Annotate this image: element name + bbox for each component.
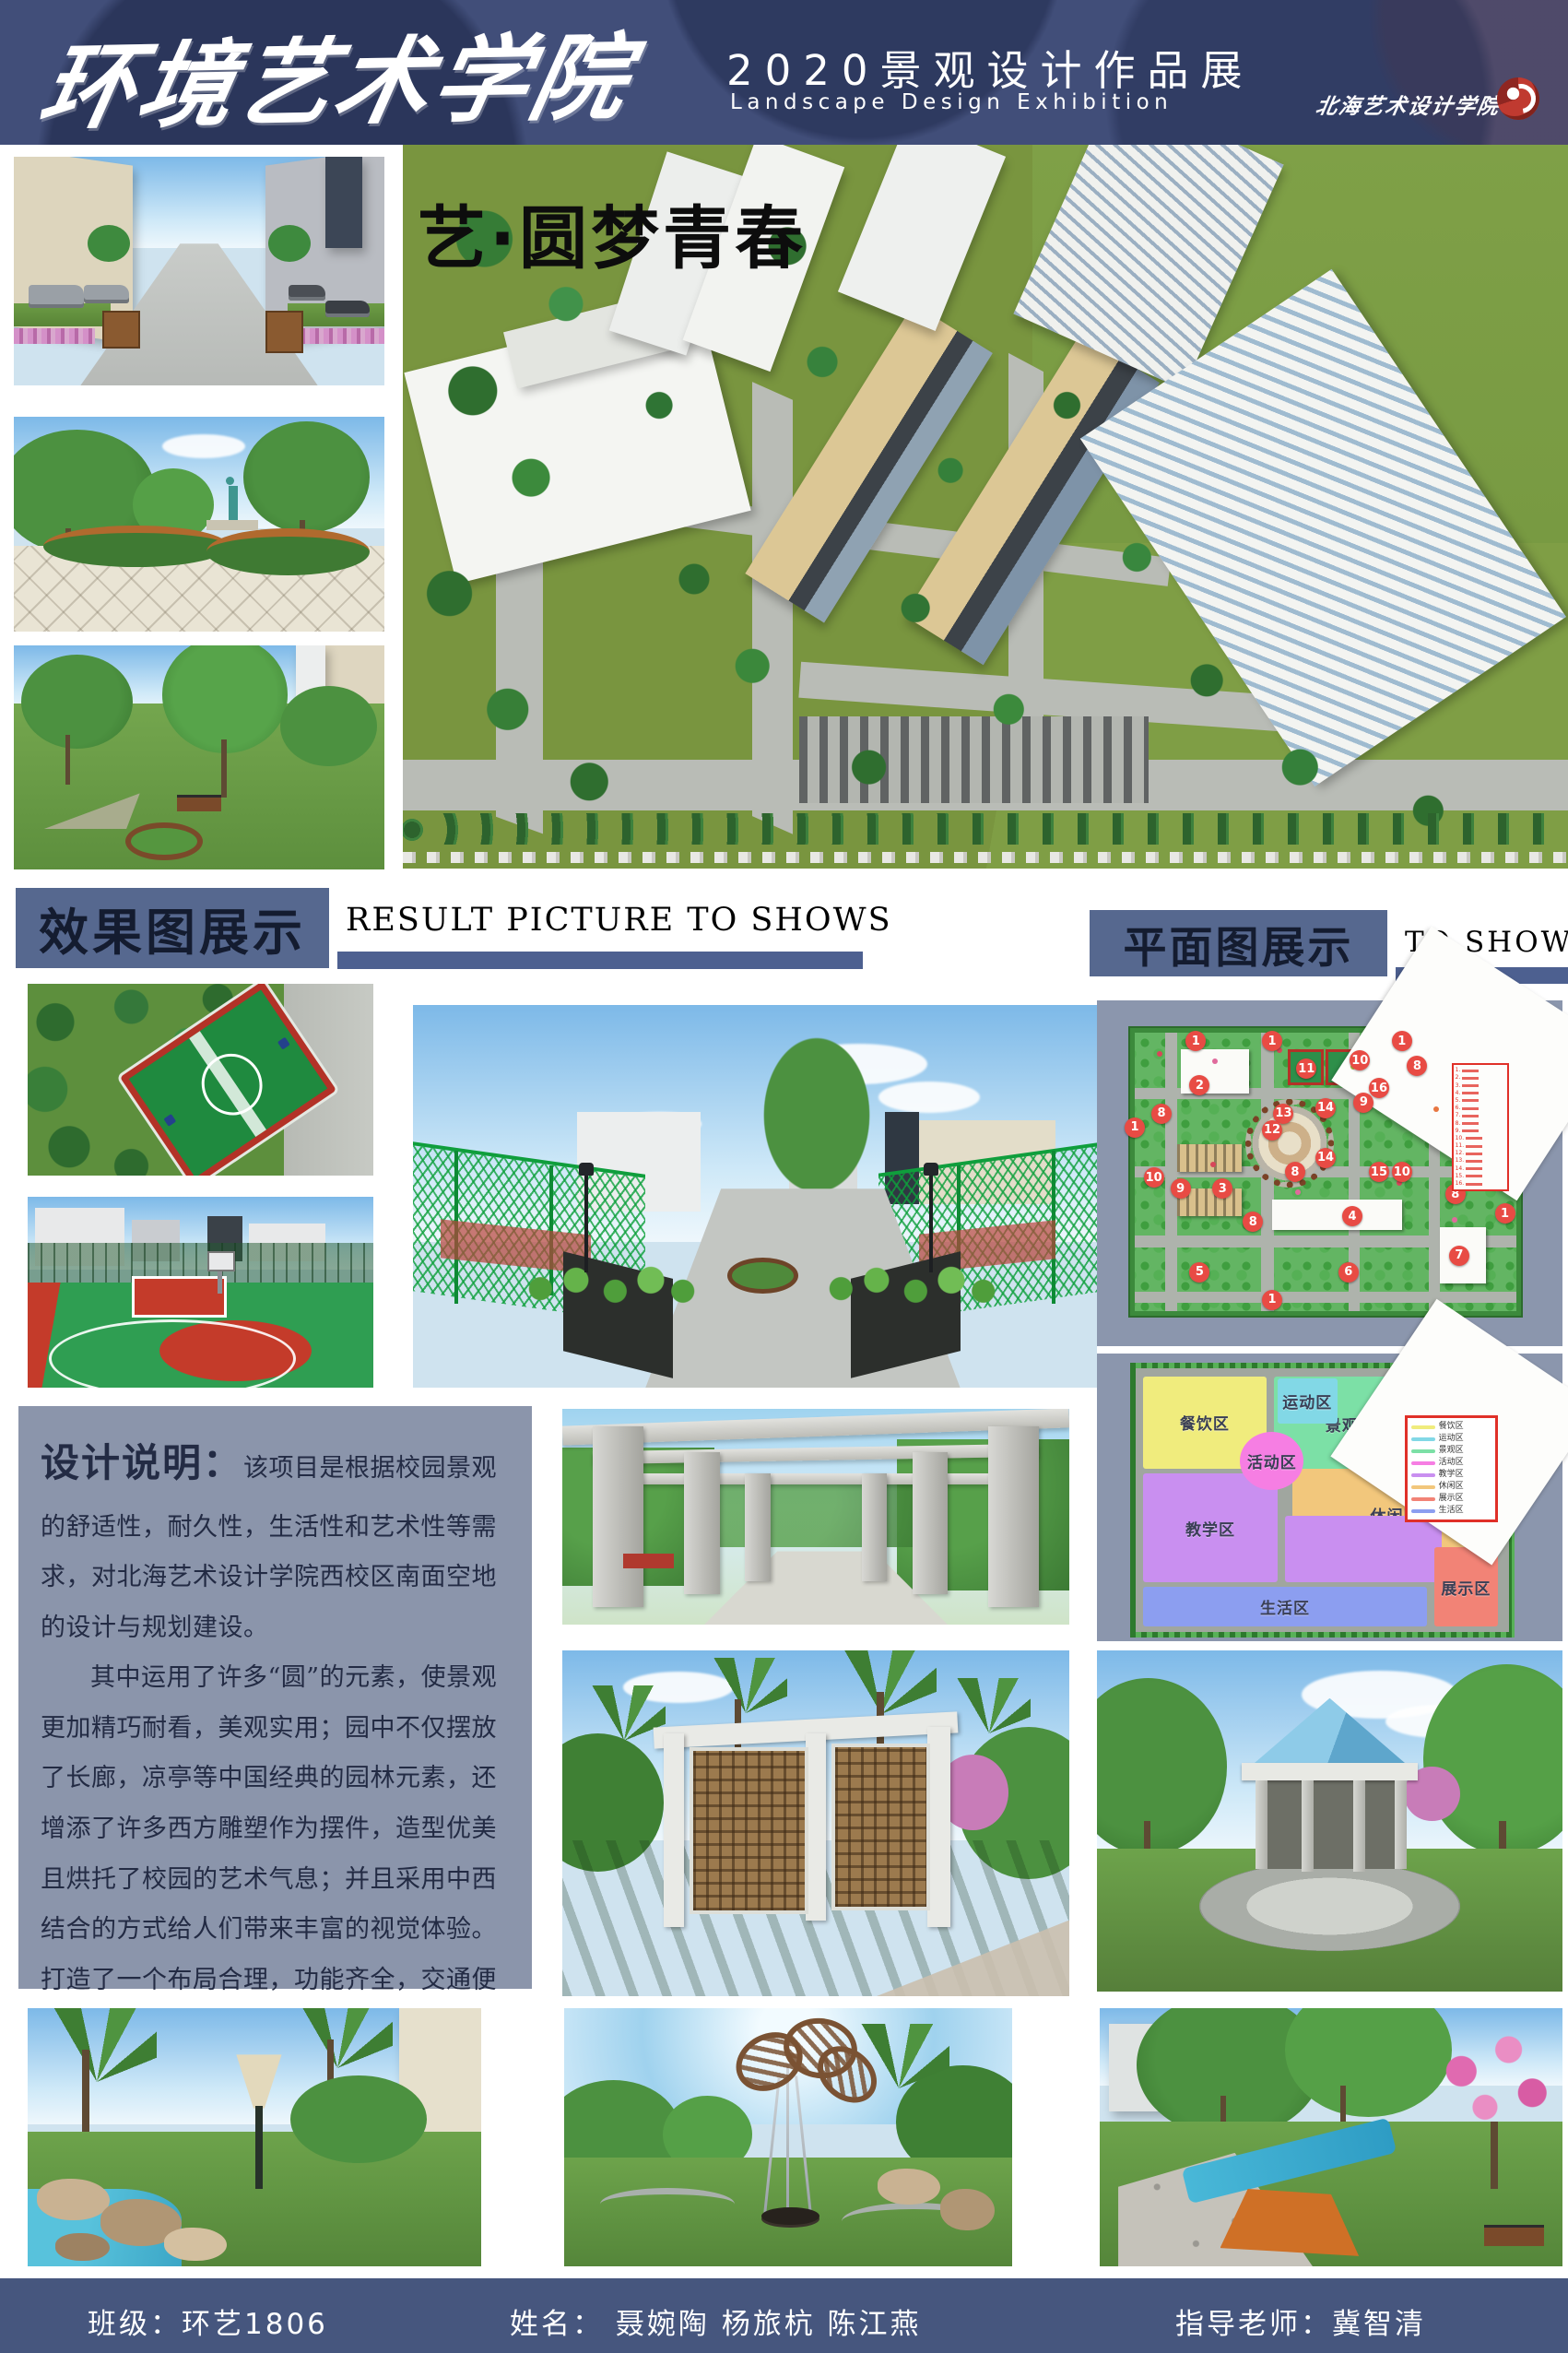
render-basketball-closeup — [28, 1197, 373, 1388]
poster-header: 环境艺术学院 2020景观设计作品展 Landscape Design Exhi… — [0, 0, 1568, 145]
section-title-plans: 平面图展示 — [1090, 910, 1387, 976]
site-plan-panel: 111111211108169813141214815101093884756 … — [1097, 1000, 1562, 1346]
description-label: 设计说明： — [41, 1440, 243, 1485]
plan-marker: 10 — [1144, 1167, 1164, 1188]
plan-marker: 1 — [1185, 1031, 1206, 1051]
render-flower-sculpture — [564, 2008, 1012, 2266]
plan-legend-item: 12. — [1456, 1151, 1505, 1156]
render-statue-plaza — [14, 417, 384, 632]
bench-shape — [623, 1554, 674, 1568]
zoning-legend-item: 景观区 — [1411, 1447, 1491, 1455]
plan-marker: 8 — [1243, 1212, 1263, 1232]
design-description: 设计说明：该项目是根据校园景观的舒适性，耐久性，生活性和艺术性等需求，对北海艺术… — [18, 1406, 532, 1989]
plan-legend-item: 6. — [1456, 1106, 1505, 1111]
lattice-panel — [690, 1747, 808, 1914]
plan-legend-item: 4. — [1456, 1091, 1505, 1096]
zoning-legend-item: 运动区 — [1411, 1435, 1491, 1443]
plan-marker: 1 — [1392, 1031, 1412, 1051]
render-stream-sculpture — [28, 2008, 481, 2266]
render-basketball-aerial — [28, 984, 373, 1176]
poster-footer: 班级：环艺1806 姓名： 聂婉陶 杨旅杭 陈江燕 指导老师：冀智清 — [0, 2278, 1568, 2353]
zoning-legend: 餐饮区运动区景观区活动区教学区休闲区展示区生活区 — [1405, 1415, 1498, 1522]
statue-silhouette — [229, 486, 238, 523]
plan-marker: 9 — [1171, 1178, 1191, 1199]
section-title-results-label: 效果图展示 — [39, 892, 306, 964]
school-logo-swirl-icon — [1497, 77, 1539, 120]
plan-marker: 1 — [1262, 1031, 1282, 1051]
zone-activity: 活动区 — [1240, 1432, 1303, 1490]
render-pergola-corridor — [562, 1409, 1069, 1625]
footer-class: 班级：环艺1806 — [88, 2300, 328, 2342]
exhibition-poster: 环境艺术学院 2020景观设计作品展 Landscape Design Exhi… — [0, 0, 1568, 2353]
basketball-court-surface — [28, 1283, 373, 1388]
plan-legend-item: 2. — [1456, 1075, 1505, 1081]
plan-marker: 14 — [1315, 1148, 1336, 1168]
section-title-results: 效果图展示 — [16, 888, 329, 968]
trumpet-sculpture — [236, 2054, 281, 2189]
render-lawn-trees — [14, 645, 384, 869]
exhibition-subtitle: Landscape Design Exhibition — [730, 90, 1173, 114]
sculpture-base — [761, 2207, 819, 2226]
footer-advisor: 指导老师：冀智清 — [1175, 2300, 1426, 2342]
plan-legend: 1.2.3.4.5.6.7.8.9.10.11.12.13.14.15.16. — [1452, 1063, 1509, 1191]
street-lamp — [584, 1174, 588, 1273]
plan-marker: 6 — [1338, 1262, 1359, 1283]
plan-legend-item: 15. — [1456, 1174, 1505, 1179]
zone-living: 生活区 — [1143, 1587, 1427, 1626]
plan-legend-item: 14. — [1456, 1166, 1505, 1172]
zoning-legend-item: 展示区 — [1411, 1495, 1491, 1503]
zoning-legend-item: 教学区 — [1411, 1471, 1491, 1479]
plan-marker: 8 — [1407, 1056, 1427, 1076]
plan-legend-item: 10. — [1456, 1136, 1505, 1141]
plan-marker: 5 — [1189, 1262, 1209, 1283]
plan-marker: 14 — [1315, 1098, 1336, 1118]
bench-shape — [177, 795, 221, 811]
plan-legend-item: 5. — [1456, 1098, 1505, 1104]
site-plan-drawing: 111111211108169813141214815101093884756 … — [1130, 1028, 1521, 1316]
zoning-legend-item: 餐饮区 — [1411, 1423, 1491, 1431]
plan-marker: 10 — [1392, 1162, 1412, 1182]
street-lamp — [929, 1174, 933, 1273]
hero-title: 艺·圆梦青春 — [418, 183, 807, 282]
plan-marker: 16 — [1369, 1078, 1389, 1098]
render-park-path — [413, 1005, 1097, 1388]
plan-marker: 9 — [1353, 1093, 1373, 1113]
plan-legend-item: 8. — [1456, 1121, 1505, 1127]
plan-legend-item: 7. — [1456, 1113, 1505, 1118]
section-subtitle-results-en: RESULT PICTURE TO SHOWS — [346, 902, 892, 939]
footer-names: 姓名： 聂婉陶 杨旅杭 陈江燕 — [510, 2300, 922, 2342]
render-lattice-pergola — [562, 1650, 1069, 1996]
zoning-drawing: 景观区 餐饮区 运动区 休闲区 教学区 生活区 展示区 活动区 餐饮区运动区景观… — [1130, 1363, 1515, 1638]
plan-legend-item: 1. — [1456, 1068, 1505, 1073]
plan-marker: 2 — [1189, 1075, 1209, 1095]
render-creek-path — [1100, 2008, 1562, 2266]
plan-marker: 10 — [1350, 1050, 1370, 1070]
section-title-plans-label: 平面图展示 — [1124, 912, 1354, 975]
plan-legend-item: 9. — [1456, 1129, 1505, 1134]
plan-marker: 12 — [1262, 1120, 1282, 1141]
plan-marker: 11 — [1296, 1058, 1316, 1079]
zoning-plan-panel: 景观区 餐饮区 运动区 休闲区 教学区 生活区 展示区 活动区 餐饮区运动区景观… — [1097, 1354, 1562, 1641]
render-campus-aerial: 艺·圆梦青春 — [403, 145, 1568, 869]
zoning-legend-item: 休闲区 — [1411, 1483, 1491, 1491]
backboard-shape — [207, 1251, 235, 1271]
plan-marker: 4 — [1342, 1206, 1362, 1226]
plan-marker: 8 — [1151, 1104, 1172, 1124]
plan-marker: 7 — [1449, 1246, 1469, 1266]
lattice-panel — [831, 1744, 930, 1910]
zoning-legend-item: 生活区 — [1411, 1507, 1491, 1515]
tree-planter-ring — [727, 1258, 798, 1294]
plan-legend-item: 13. — [1456, 1158, 1505, 1164]
school-name-calligraphy: 环境艺术学院 — [30, 2, 645, 148]
round-planter — [125, 822, 203, 860]
section-underline-results — [337, 952, 863, 969]
pink-blossom-tree — [1414, 2014, 1562, 2158]
plan-marker: 1 — [1125, 1117, 1145, 1138]
school-logo-text: 北海艺术设计学院 — [1314, 89, 1503, 120]
plan-legend-item: 16. — [1456, 1181, 1505, 1187]
plan-marker: 8 — [1285, 1162, 1305, 1182]
zone-teaching-ext — [1285, 1516, 1442, 1582]
car-shape — [29, 285, 84, 308]
render-gazebo — [1097, 1650, 1562, 1992]
plan-marker: 3 — [1212, 1178, 1232, 1199]
plan-marker: 1 — [1495, 1203, 1515, 1224]
zone-teaching: 教学区 — [1143, 1473, 1278, 1581]
render-street-parking — [14, 157, 384, 385]
exhibition-title: 2020景观设计作品展 — [726, 37, 1255, 97]
plan-legend-item: 11. — [1456, 1143, 1505, 1149]
plan-marker: 15 — [1369, 1162, 1389, 1182]
zoning-legend-item: 活动区 — [1411, 1459, 1491, 1467]
bench-shape — [1484, 2225, 1544, 2246]
zone-sports: 运动区 — [1278, 1378, 1338, 1424]
plan-marker: 1 — [1262, 1290, 1282, 1310]
plan-legend-item: 3. — [1456, 1083, 1505, 1089]
